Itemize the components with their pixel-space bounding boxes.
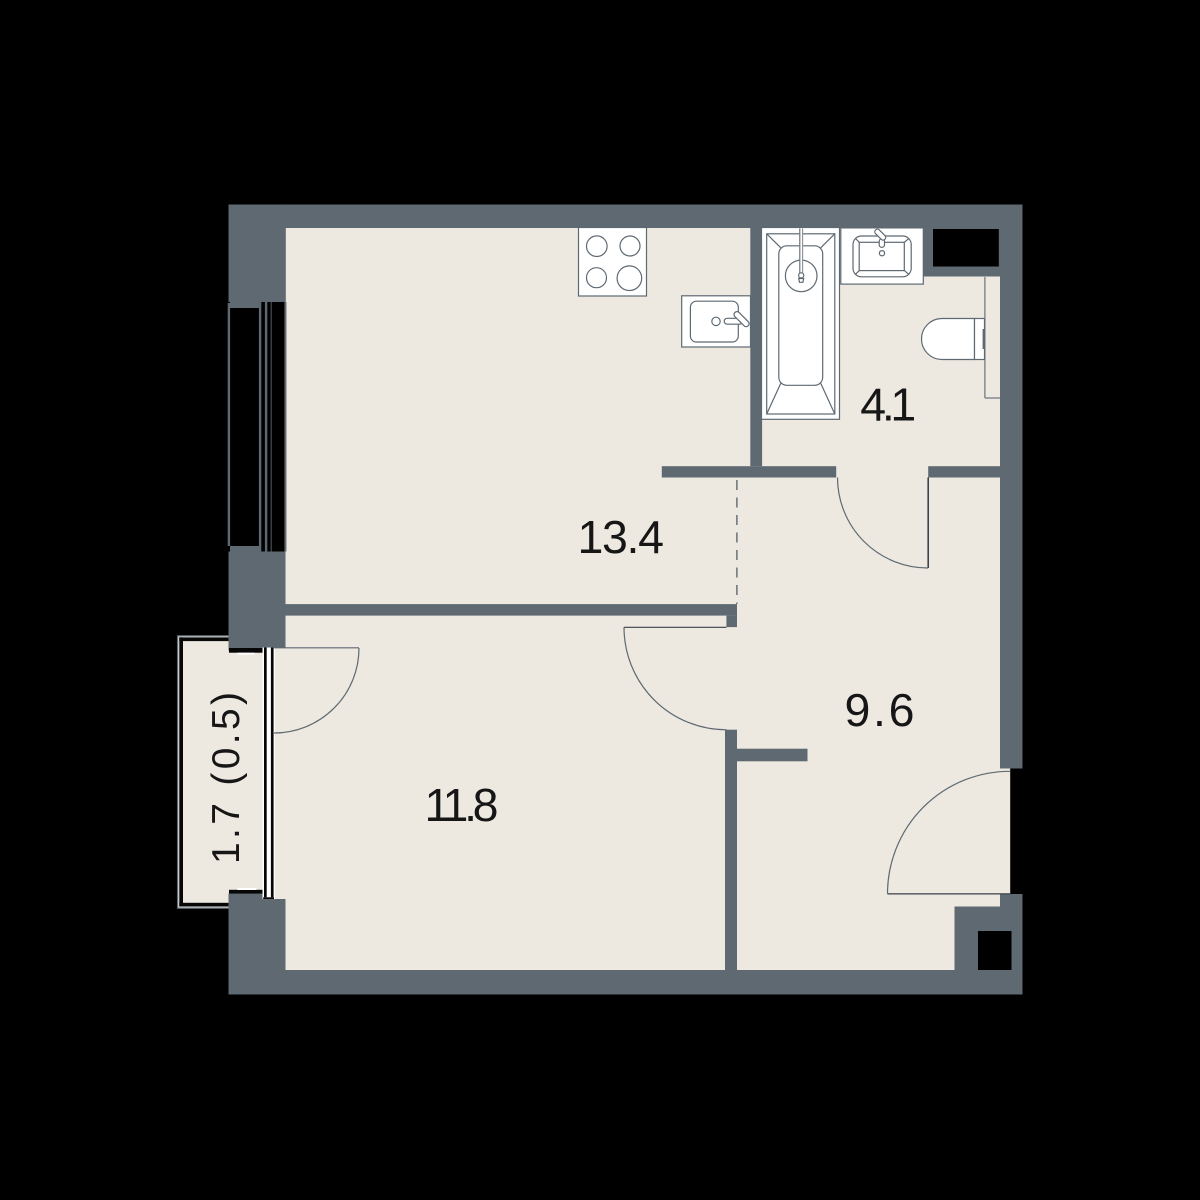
- svg-text:13.4: 13.4: [578, 511, 665, 563]
- svg-text:1.7 (0.5): 1.7 (0.5): [205, 692, 248, 864]
- svg-text:9.6: 9.6: [845, 684, 915, 736]
- svg-text:11.8: 11.8: [425, 779, 499, 831]
- svg-text:4.1: 4.1: [860, 379, 916, 431]
